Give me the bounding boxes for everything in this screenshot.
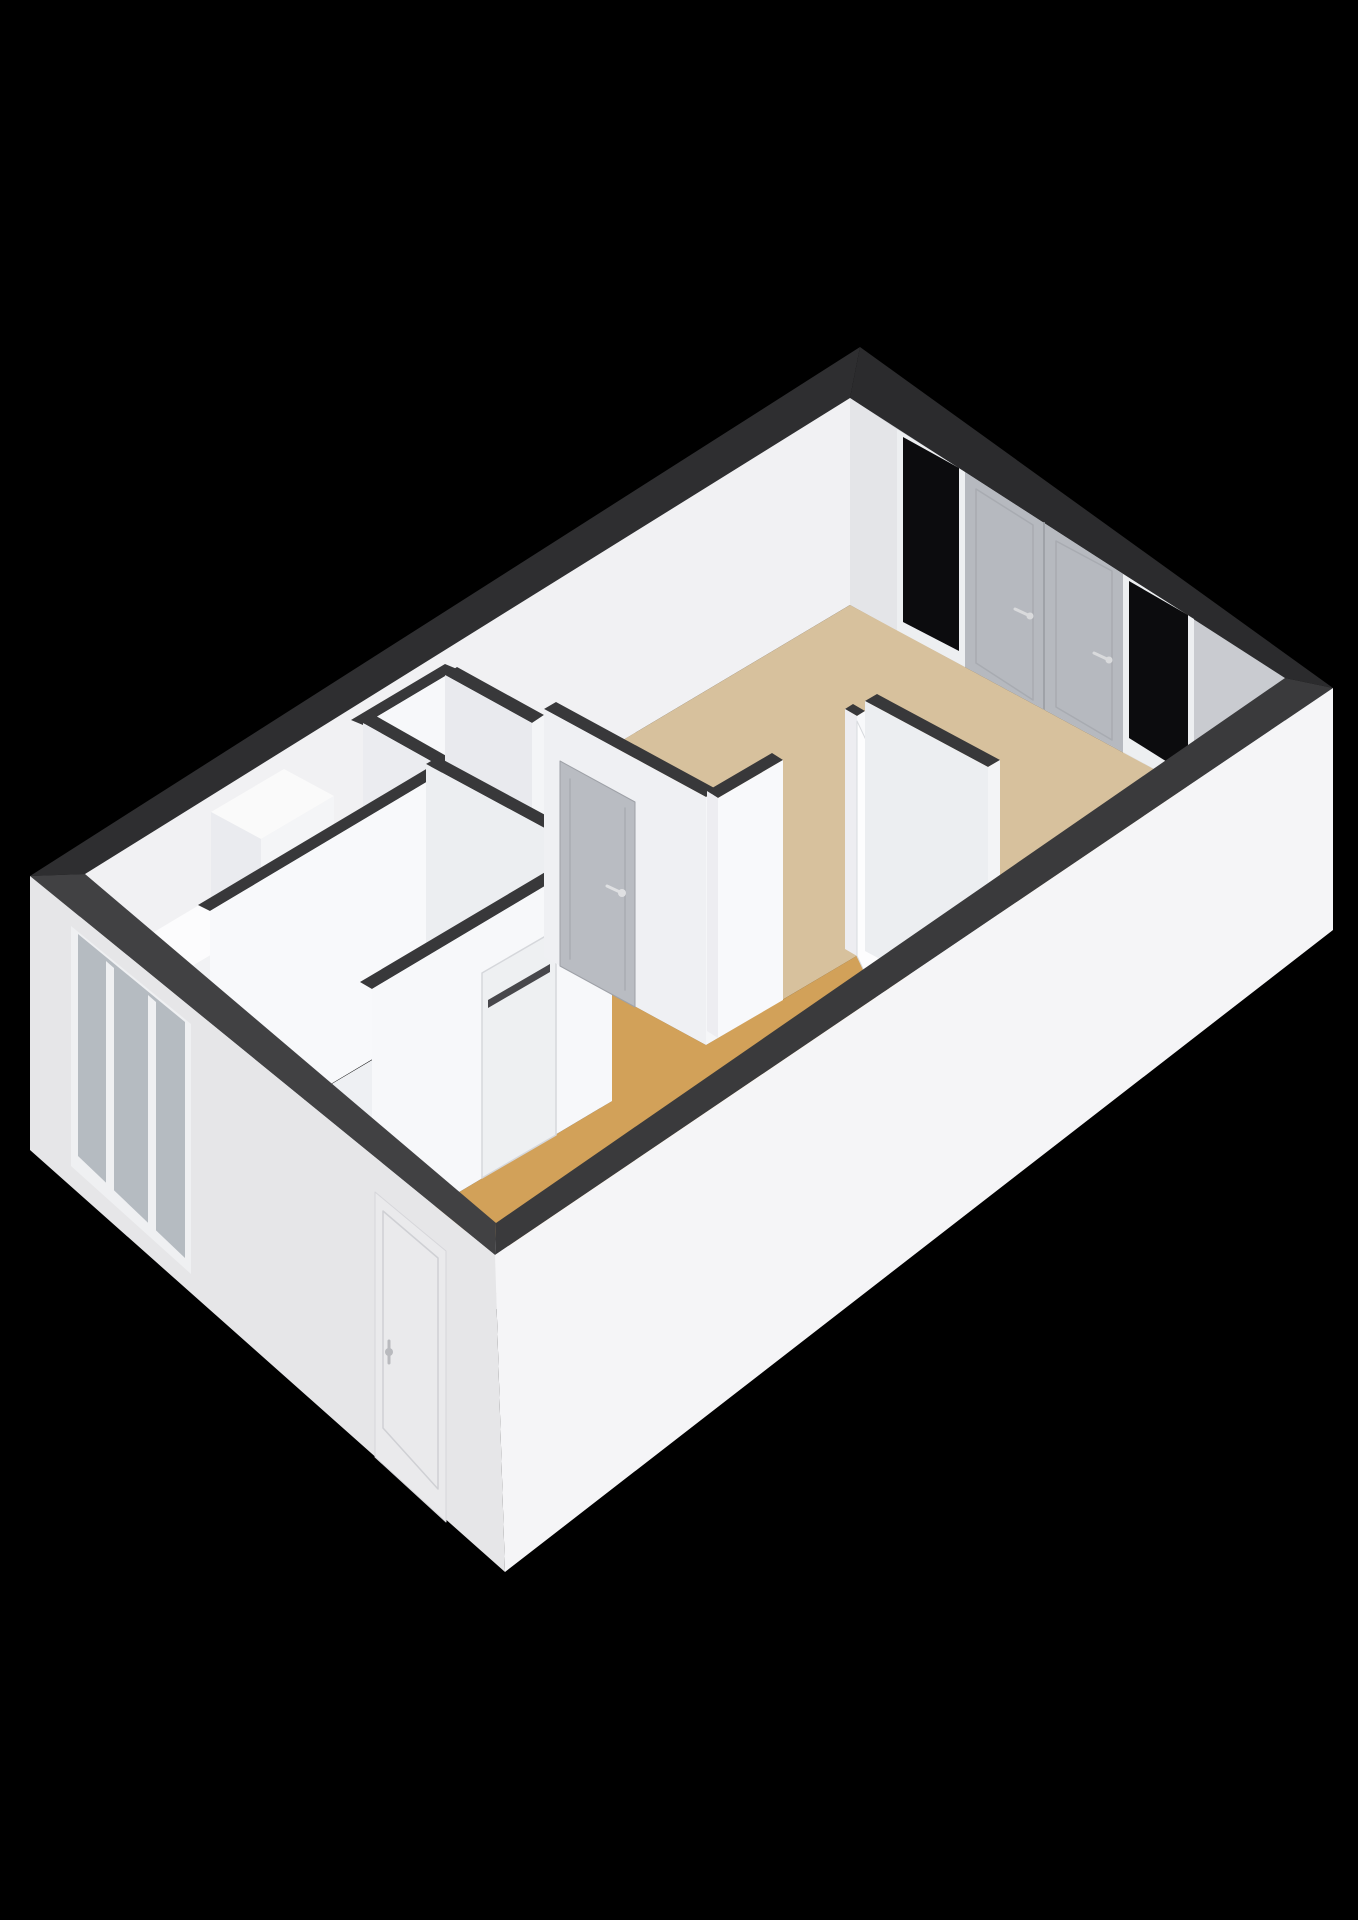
interior-door-handle (618, 889, 626, 897)
interior-door-gray (560, 761, 635, 1007)
balcony-door-handle-2 (1106, 657, 1113, 664)
front-door (375, 1192, 446, 1522)
window-glass-1 (903, 437, 959, 651)
doorway-wall-cap (707, 791, 718, 1038)
front-door-handle (385, 1348, 393, 1356)
door-jamb-side (845, 709, 857, 956)
kitchen-window-mullion-1 (106, 961, 114, 1196)
kitchen-window-mullion-2 (148, 995, 156, 1233)
doorway-wall-face (718, 760, 783, 1038)
floorplan-3d-viewport[interactable] (0, 0, 1358, 1920)
ne-wall-pillar (850, 398, 897, 631)
floorplan-svg (0, 0, 1358, 1920)
balcony-door-handle-1 (1027, 613, 1034, 620)
